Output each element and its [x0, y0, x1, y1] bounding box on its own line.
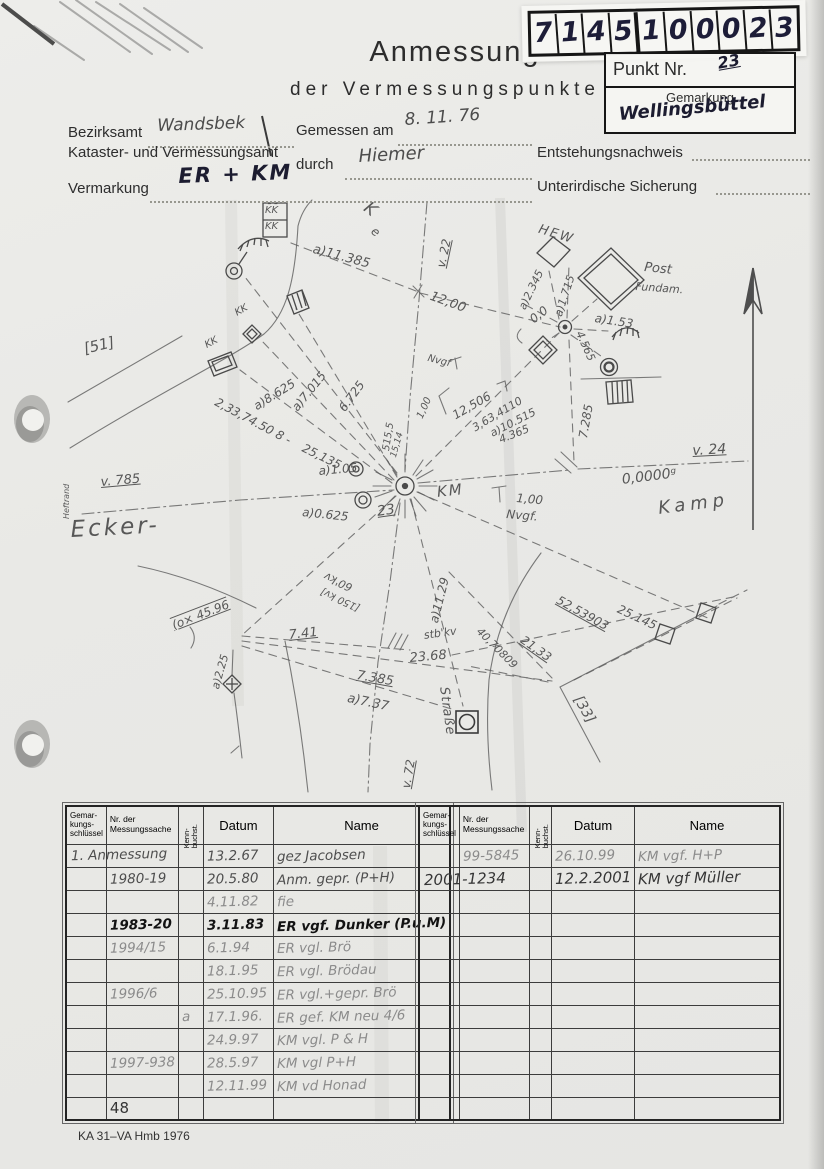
table-cell-nr: 1983-20: [106, 913, 178, 936]
table-cell-datum: 12.11.99: [203, 1074, 273, 1097]
form-code: KA 31–VA Hmb 1976: [78, 1129, 190, 1143]
sketch-label: (o× 45.96: [170, 597, 231, 632]
cell-value: KM vd Honad: [277, 1076, 367, 1094]
cell-value: 17.1.96.: [207, 1008, 263, 1025]
table-cell-nr: 1980-19: [106, 867, 178, 890]
cell-value: ER vgl. Brö: [277, 939, 352, 957]
table-cell-nr: [459, 1005, 529, 1028]
history-table: Gemar- kungs- schlüsselNr. der Messungss…: [65, 805, 451, 1121]
sketch-label: Ecker-: [70, 512, 160, 543]
table-row: [419, 1097, 780, 1120]
table-cell-name: [635, 1005, 780, 1028]
table-cell-nr: 48: [106, 1097, 178, 1120]
table-cell-g: [66, 867, 106, 890]
table-cell-kenn: [178, 844, 203, 867]
column-header-name: Name: [635, 806, 780, 844]
cell-value: 4.11.82: [207, 893, 259, 910]
table-cell-name: [635, 890, 780, 913]
table-cell-datum: 6.1.94: [203, 936, 273, 959]
table-cell-nr: [106, 1028, 178, 1051]
cell-value: a: [182, 1008, 191, 1024]
punkt-nr-row: Punkt Nr. 23: [606, 54, 794, 88]
table-row: a17.1.96.ER gef. KM neu 4/6: [66, 1005, 450, 1028]
table-cell-kenn: [529, 913, 551, 936]
cell-value: 26.10.99: [555, 847, 616, 865]
sketch-label: 1,00: [415, 396, 434, 421]
table-cell-g: [66, 1097, 106, 1120]
sketch-label: 1,00: [516, 491, 544, 507]
stamp-digit: 0: [689, 9, 718, 51]
table-cell-name: [635, 1051, 780, 1074]
table-cell-kenn: a: [178, 1005, 203, 1028]
table-cell-nr: 1994/15: [106, 936, 178, 959]
cell-value: 99-5845: [463, 847, 520, 864]
table-cell-kenn: [529, 1028, 551, 1051]
stamp-digit: 3: [769, 8, 798, 50]
sketch-label: Nvgf.: [506, 507, 539, 524]
table-cell-name: [635, 913, 780, 936]
sketch-label: 23.68: [409, 648, 447, 666]
sketch-label: a)7.015: [289, 369, 329, 414]
durch-value: Hiemer: [358, 143, 425, 167]
table-cell-datum: 17.1.96.: [203, 1005, 273, 1028]
amt-line: Kataster- und Vermessungsamt: [68, 144, 278, 161]
table-row: 1. Anmessung13.2.67gez Jacobsen: [66, 844, 450, 867]
cell-value: 25.10.95: [207, 985, 268, 1003]
punkt-nr-value: 23: [716, 50, 741, 73]
table-cell-g: 2001-1234: [419, 867, 459, 890]
sketch-label: a)1.53: [594, 311, 634, 331]
table-row: 4.11.82fie: [66, 890, 450, 913]
table-cell-kenn: [529, 982, 551, 1005]
stamp-digit: 5: [607, 11, 636, 53]
table-cell-kenn: [178, 982, 203, 1005]
sketch-label: e: [368, 224, 382, 240]
table-row: [419, 1051, 780, 1074]
sketch-label: a)0.625: [302, 505, 350, 524]
cell-value: 12.2.2001: [555, 868, 632, 888]
sketch-label: a)11.385: [311, 242, 371, 272]
sketch-label: v. 785: [100, 472, 141, 490]
entstehungsnachweis-label: Entstehungsnachweis: [537, 144, 683, 161]
table-row: [419, 959, 780, 982]
sketch-label: 4.565: [573, 329, 598, 363]
cell-value: 48: [110, 1099, 129, 1117]
cell-value: 1. Anmessung: [71, 845, 168, 864]
table-cell-datum: 28.5.97: [203, 1051, 273, 1074]
sketch-label: 25.145: [615, 602, 659, 632]
punkt-nr-label: Punkt Nr.: [613, 59, 687, 80]
cell-value: 20.5.80: [207, 870, 259, 887]
table-row: 48: [66, 1097, 450, 1120]
sketch-label: 52,53903: [554, 593, 611, 633]
cell-value: 13.2.67: [207, 847, 259, 864]
table-cell-kenn: [178, 890, 203, 913]
table-cell-name: [635, 982, 780, 1005]
table-cell-kenn: [529, 844, 551, 867]
bezirksamt-label: Bezirksamt: [68, 124, 142, 141]
sketch-label: KK: [233, 302, 250, 318]
sketch-label: 6.725: [336, 378, 368, 414]
table-cell-kenn: [178, 959, 203, 982]
table-cell-g: [66, 1074, 106, 1097]
table-cell-name: [635, 1097, 780, 1120]
durch-label: durch: [296, 156, 334, 173]
table-cell-g: [66, 1051, 106, 1074]
table-cell-nr: [106, 1074, 178, 1097]
sketch-label: [51]: [82, 333, 116, 357]
sketch-label: a)2.25: [209, 653, 231, 691]
stamp-digit: 0: [663, 10, 692, 52]
cell-value: 1997-938: [110, 1054, 175, 1072]
sketch-label: 7.385: [355, 668, 394, 689]
sketch-label: a)7.37: [346, 691, 390, 714]
sketch-label: 21,33: [518, 633, 554, 664]
table-cell-g: [419, 1028, 459, 1051]
sketch-label: KM: [436, 480, 465, 501]
table-cell-g: [66, 890, 106, 913]
table-cell-g: [419, 1005, 459, 1028]
table-header-row: Gemar- kungs- schlüsselNr. der Messungss…: [66, 806, 450, 844]
table-cell-kenn: [529, 936, 551, 959]
cell-value: ER gef. KM neu 4/6: [277, 1007, 406, 1026]
table-cell-datum: 18.1.95: [203, 959, 273, 982]
sketch-label: HEW: [537, 222, 577, 247]
sketch-label: K̄K̄: [265, 205, 278, 216]
table-cell-nr: [106, 1005, 178, 1028]
table-cell-g: 1. Anmessung: [66, 844, 106, 867]
point-id-box: Punkt Nr. 23 Gemarkung Wellingsbüttel: [604, 52, 796, 134]
cell-value: KM vgl. P & H: [277, 1030, 368, 1048]
sketch-label: 7.41: [288, 625, 318, 643]
table-cell-g: [419, 982, 459, 1005]
table-cell-datum: [551, 1097, 634, 1120]
table-cell-kenn: [178, 913, 203, 936]
cell-value: 1980-19: [110, 870, 167, 887]
stamp-digit: 1: [554, 12, 583, 54]
table-cell-nr: [459, 890, 529, 913]
sketch-label: Nvgf: [426, 353, 451, 369]
cell-value: fie: [277, 893, 294, 909]
measurement-history-table-right: Gemar- kungs- schlüsselNr. der Messungss…: [418, 805, 781, 1121]
table-cell-g: [419, 1097, 459, 1120]
cell-value: Anm. gepr. (P+H): [277, 869, 395, 888]
sketch-label: a)1.715: [552, 274, 578, 318]
cell-value: 1983-20: [110, 916, 172, 934]
cell-value: ER vgl. Brödau: [277, 961, 377, 980]
table-cell-name: [635, 1028, 780, 1051]
cell-value: 1994/15: [110, 939, 166, 956]
sketch-label: v. 22: [434, 238, 454, 269]
table-cell-name: [635, 1074, 780, 1097]
table-row: [419, 1074, 780, 1097]
column-header-g: Gemar- kungs- schlüssel: [419, 806, 459, 844]
scanned-survey-form: Anmessung der Vermessungspunkte 71451000…: [0, 0, 824, 1169]
table-cell-nr: [106, 959, 178, 982]
column-header-label: Kenn- buchst.: [183, 810, 200, 848]
sketch-label: 0,0: [527, 303, 551, 326]
sketch-label: Fundam.: [635, 280, 684, 296]
table-cell-kenn: [178, 1074, 203, 1097]
sketch-label: KK: [203, 335, 220, 351]
gemarkung-row: Gemarkung Wellingsbüttel: [606, 88, 794, 132]
table-cell-datum: 26.10.99: [551, 844, 634, 867]
table-cell-g: [66, 1005, 106, 1028]
column-header-datum: Datum: [551, 806, 634, 844]
table-cell-g: [66, 959, 106, 982]
sketch-label: Kamp: [657, 489, 730, 519]
column-header-datum: Datum: [203, 806, 273, 844]
table-cell-datum: [551, 1051, 634, 1074]
table-cell-datum: 25.10.95: [203, 982, 273, 1005]
sketch-label: a)1.05: [318, 461, 358, 478]
column-header-label: Kenn- buchst.: [534, 810, 551, 848]
table-cell-kenn: [529, 890, 551, 913]
table-cell-kenn: [178, 1028, 203, 1051]
table-cell-nr: 1996/6: [106, 982, 178, 1005]
table-cell-kenn: [178, 1051, 203, 1074]
table-cell-datum: 3.11.83: [203, 913, 273, 936]
sketch-label: a)8.625: [251, 376, 298, 412]
cell-value: 24.9.97: [207, 1031, 259, 1048]
sketch-label: K̄K̄: [265, 221, 278, 232]
table-row: 12.11.99KM vd Honad: [66, 1074, 450, 1097]
table-row: 1996/625.10.95ER vgl.+gepr. Brö: [66, 982, 450, 1005]
table-cell-nr: [459, 1097, 529, 1120]
stamp-digit-row: 7145100023: [528, 5, 801, 57]
table-cell-g: [419, 844, 459, 867]
vermarkung-label: Vermarkung: [68, 180, 149, 197]
table-cell-kenn: [529, 1051, 551, 1074]
table-cell-kenn: [178, 936, 203, 959]
table-cell-nr: [106, 890, 178, 913]
stamp-digit: 0: [716, 9, 745, 51]
cell-value: 28.5.97: [207, 1054, 259, 1071]
cell-value: 2001-1234: [424, 868, 506, 888]
gemessen-am-label: Gemessen am: [296, 122, 394, 139]
table-cell-g: [66, 913, 106, 936]
table-cell-g: [66, 936, 106, 959]
table-cell-name: [635, 959, 780, 982]
table-cell-datum: [551, 982, 634, 1005]
table-cell-nr: [459, 1051, 529, 1074]
cell-value: KM vgf Müller: [638, 868, 741, 889]
table-cell-datum: 20.5.80: [203, 867, 273, 890]
table-row: 1997-93828.5.97KM vgl P+H: [66, 1051, 450, 1074]
table-cell-kenn: [178, 867, 203, 890]
sketch-label: 7.285: [576, 403, 596, 439]
sketch-label: v. 72: [399, 758, 418, 789]
table-cell-g: [66, 1028, 106, 1051]
sketch-label: K: [360, 198, 381, 221]
measurement-history-table-left: Gemar- kungs- schlüsselNr. der Messungss…: [65, 805, 451, 1121]
table-row: [419, 890, 780, 913]
table-cell-kenn: [529, 867, 551, 890]
table-row: 99-584526.10.99KM vgf. H+P: [419, 844, 780, 867]
table-cell-nr: [459, 936, 529, 959]
column-header-kenn: Kenn- buchst.: [529, 806, 551, 844]
table-cell-name: [635, 936, 780, 959]
table-row: [419, 982, 780, 1005]
sketch-label: v. 24: [692, 441, 727, 459]
table-cell-kenn: [529, 959, 551, 982]
table-cell-nr: [459, 1028, 529, 1051]
column-header-nr: Nr. der Messungssache: [459, 806, 529, 844]
column-header-kenn: Kenn- buchst.: [178, 806, 203, 844]
sketch-label: [33]: [570, 693, 598, 726]
table-cell-datum: [551, 1028, 634, 1051]
cell-value: KM vgl P+H: [277, 1053, 356, 1071]
table-cell-name: KM vgf Müller: [635, 867, 780, 890]
column-header-g: Gemar- kungs- schlüssel: [66, 806, 106, 844]
vermarkung-value: ER + KM: [178, 160, 293, 188]
table-cell-nr: 1997-938: [106, 1051, 178, 1074]
table-cell-datum: [551, 913, 634, 936]
table-row: [419, 936, 780, 959]
table-row: 24.9.97KM vgl. P & H: [66, 1028, 450, 1051]
cell-value: 6.1.94: [207, 939, 250, 956]
form-subtitle: der Vermessungspunkte: [275, 79, 615, 101]
sketch-label: 40,70809: [474, 625, 520, 671]
table-cell-datum: 24.9.97: [203, 1028, 273, 1051]
table-cell-datum: 4.11.82: [203, 890, 273, 913]
table-row: 2001-123412.2.2001KM vgf Müller: [419, 867, 780, 890]
table-header-row: Gemar- kungs- schlüsselNr. der Messungss…: [419, 806, 780, 844]
table-cell-g: [419, 913, 459, 936]
table-cell-g: [419, 959, 459, 982]
stamp-digit: 4: [581, 12, 610, 54]
sketch-label: Straße: [436, 686, 458, 736]
table-cell-datum: [551, 1005, 634, 1028]
table-cell-g: [419, 1051, 459, 1074]
table-row: [419, 1005, 780, 1028]
cell-value: 18.1.95: [207, 962, 259, 979]
sketch-label: Post: [643, 260, 672, 278]
table-row: [419, 1028, 780, 1051]
bezirksamt-value: Wandsbek: [157, 113, 245, 136]
table-row: 18.1.95ER vgl. Brödau: [66, 959, 450, 982]
unterirdische-sicherung-label: Unterirdische Sicherung: [537, 178, 697, 195]
history-table: Gemar- kungs- schlüsselNr. der Messungss…: [418, 805, 781, 1121]
sketch-label: 0,0000ᵍ: [621, 465, 677, 488]
table-cell-g: [419, 936, 459, 959]
table-cell-datum: [551, 890, 634, 913]
table-cell-name: KM vgf. H+P: [635, 844, 780, 867]
sketch-label: a)11.29: [427, 576, 452, 624]
table-cell-kenn: [178, 1097, 203, 1120]
stamp-digit: 1: [634, 10, 665, 52]
table-cell-kenn: [529, 1005, 551, 1028]
table-cell-kenn: [529, 1074, 551, 1097]
cell-value: 1996/6: [110, 985, 158, 1002]
sketch-label: 23: [376, 502, 396, 520]
table-cell-datum: 12.2.2001: [551, 867, 634, 890]
table-cell-kenn: [529, 1097, 551, 1120]
table-row: [419, 913, 780, 936]
table-row: 1980-1920.5.80Anm. gepr. (P+H): [66, 867, 450, 890]
stamp-digit: 2: [742, 8, 771, 50]
sketch-label: Heftrand: [62, 484, 71, 519]
table-cell-g: [419, 890, 459, 913]
cell-value: gez Jacobsen: [277, 846, 366, 864]
cell-value: KM vgf. H+P: [638, 846, 722, 864]
column-header-nr: Nr. der Messungssache: [106, 806, 178, 844]
table-row: 1983-203.11.83ER vgf. Dunker (P.u.M): [66, 913, 450, 936]
stamp-digit: 7: [530, 13, 557, 55]
cell-value: 12.11.99: [207, 1077, 268, 1095]
table-cell-nr: [459, 959, 529, 982]
cell-value: ER vgl.+gepr. Brö: [277, 984, 397, 1003]
table-cell-nr: [459, 1074, 529, 1097]
table-cell-nr: 99-5845: [459, 844, 529, 867]
table-cell-datum: 13.2.67: [203, 844, 273, 867]
table-cell-nr: [459, 982, 529, 1005]
sketch-label: stb'kv: [423, 624, 457, 641]
table-cell-datum: [203, 1097, 273, 1120]
table-cell-datum: [551, 936, 634, 959]
sketch-label: 12,00: [428, 289, 468, 316]
table-cell-g: [66, 982, 106, 1005]
table-row: 1994/156.1.94ER vgl. Brö: [66, 936, 450, 959]
table-cell-nr: [459, 913, 529, 936]
table-cell-g: [419, 1074, 459, 1097]
table-cell-datum: [551, 959, 634, 982]
table-cell-datum: [551, 1074, 634, 1097]
cell-value: 3.11.83: [207, 916, 265, 933]
